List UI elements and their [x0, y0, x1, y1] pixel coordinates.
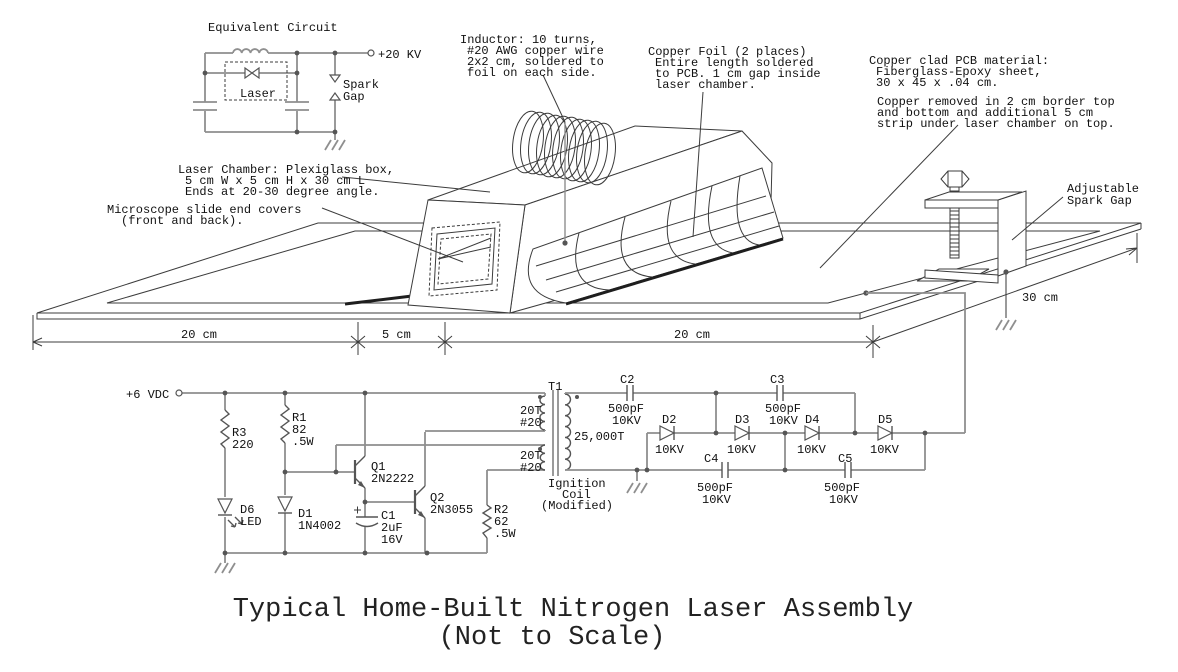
diagram-canvas: Equivalent Circuit +20 KV Spark Gap Lase… [0, 0, 1178, 672]
label-d2-2: 10KV [655, 443, 685, 457]
equivalent-circuit-heading: Equivalent Circuit [208, 21, 338, 35]
supply-terminal-circle [176, 390, 182, 396]
label-primbot-2: #20 [520, 461, 542, 475]
laser-label: Laser [240, 87, 276, 101]
dim-5cm: 5 cm [382, 328, 411, 342]
label-secondary: 25,000T [574, 430, 624, 444]
label-c5-3: 10KV [829, 493, 859, 507]
label-d5-2: 10KV [870, 443, 900, 457]
label-supply: +6 VDC [126, 388, 169, 402]
label-r2-3: .5W [494, 527, 516, 541]
label-d3-2: 10KV [727, 443, 757, 457]
label-c3-1: C3 [770, 373, 784, 387]
label-d3-1: D3 [735, 413, 749, 427]
spark-gap-label-2: Gap [343, 90, 365, 104]
label-q2-2: 2N3055 [430, 503, 473, 517]
label-ignition-3: (Modified) [541, 499, 613, 513]
label-primtop-2: #20 [520, 416, 542, 430]
hv-terminal-circle [368, 50, 374, 56]
annotation-pcb-3: 30 x 45 x .04 cm. [876, 76, 998, 90]
clamp-top-front [925, 200, 998, 208]
label-d1-2: 1N4002 [298, 519, 341, 533]
label-c1-3: 16V [381, 533, 403, 547]
label-c2-1: C2 [620, 373, 634, 387]
nitrogen-laser-assembly-diagram: Equivalent Circuit +20 KV Spark Gap Lase… [0, 0, 1178, 672]
clamp-right-face [998, 191, 1026, 276]
dim-20cm-right: 20 cm [674, 328, 710, 342]
label-c5-1: C5 [838, 452, 852, 466]
annotation-slides-2: (front and back). [121, 214, 243, 228]
annotation-foil-4: laser chamber. [655, 78, 756, 92]
label-c4-1: C4 [704, 452, 718, 466]
diagram-subtitle: (Not to Scale) [439, 623, 666, 653]
annotation-inductor-4: foil on each side. [467, 66, 597, 80]
dim-30cm: 30 cm [1022, 291, 1058, 305]
label-r3-2: 220 [232, 438, 254, 452]
label-d5-1: D5 [878, 413, 892, 427]
label-c4-3: 10KV [702, 493, 732, 507]
label-d6-2: LED [240, 515, 262, 529]
label-d4-2: 10KV [797, 443, 827, 457]
annotation-chamber-3: Ends at 20-30 degree angle. [185, 185, 379, 199]
label-t1: T1 [548, 380, 562, 394]
label-q1-2: 2N2222 [371, 472, 414, 486]
label-d4-1: D4 [805, 413, 819, 427]
label-d2-1: D2 [662, 413, 676, 427]
dim-20cm-left: 20 cm [181, 328, 217, 342]
label-c3-3: 10KV [769, 414, 799, 428]
diagram-title: Typical Home-Built Nitrogen Laser Assemb… [233, 595, 914, 625]
chamber-front-face [408, 200, 525, 313]
label-c2-3: 10KV [612, 414, 642, 428]
label-r1-3: .5W [292, 435, 314, 449]
annotation-sparkgap-2: Spark Gap [1067, 194, 1132, 208]
hv-terminal-label: +20 KV [378, 48, 422, 62]
annotation-removed-3: strip under laser chamber on top. [877, 117, 1115, 131]
